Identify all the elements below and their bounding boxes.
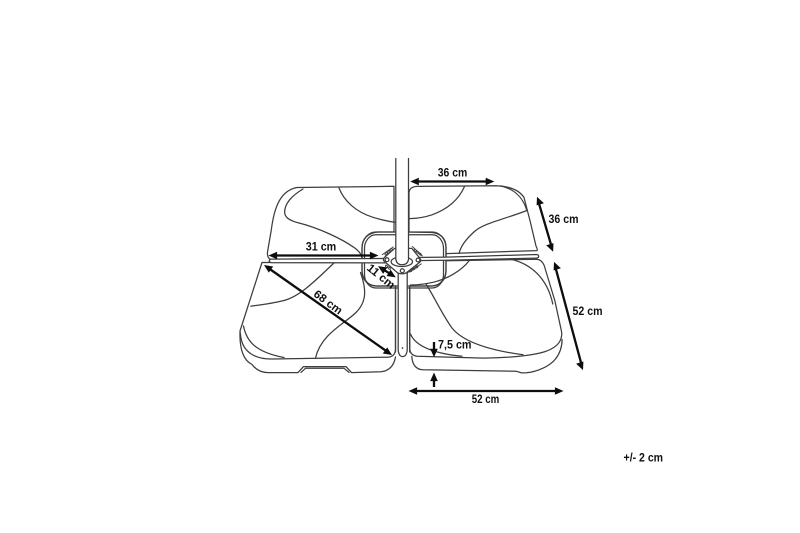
svg-text:+/- 2 cm: +/- 2 cm [624, 452, 664, 464]
svg-text:31 cm: 31 cm [306, 242, 337, 254]
svg-text:36 cm: 36 cm [549, 214, 579, 226]
svg-text:36 cm: 36 cm [438, 168, 468, 180]
svg-text:7,5 cm: 7,5 cm [438, 339, 472, 351]
svg-text:52 cm: 52 cm [573, 306, 603, 318]
svg-text:52 cm: 52 cm [472, 394, 500, 406]
